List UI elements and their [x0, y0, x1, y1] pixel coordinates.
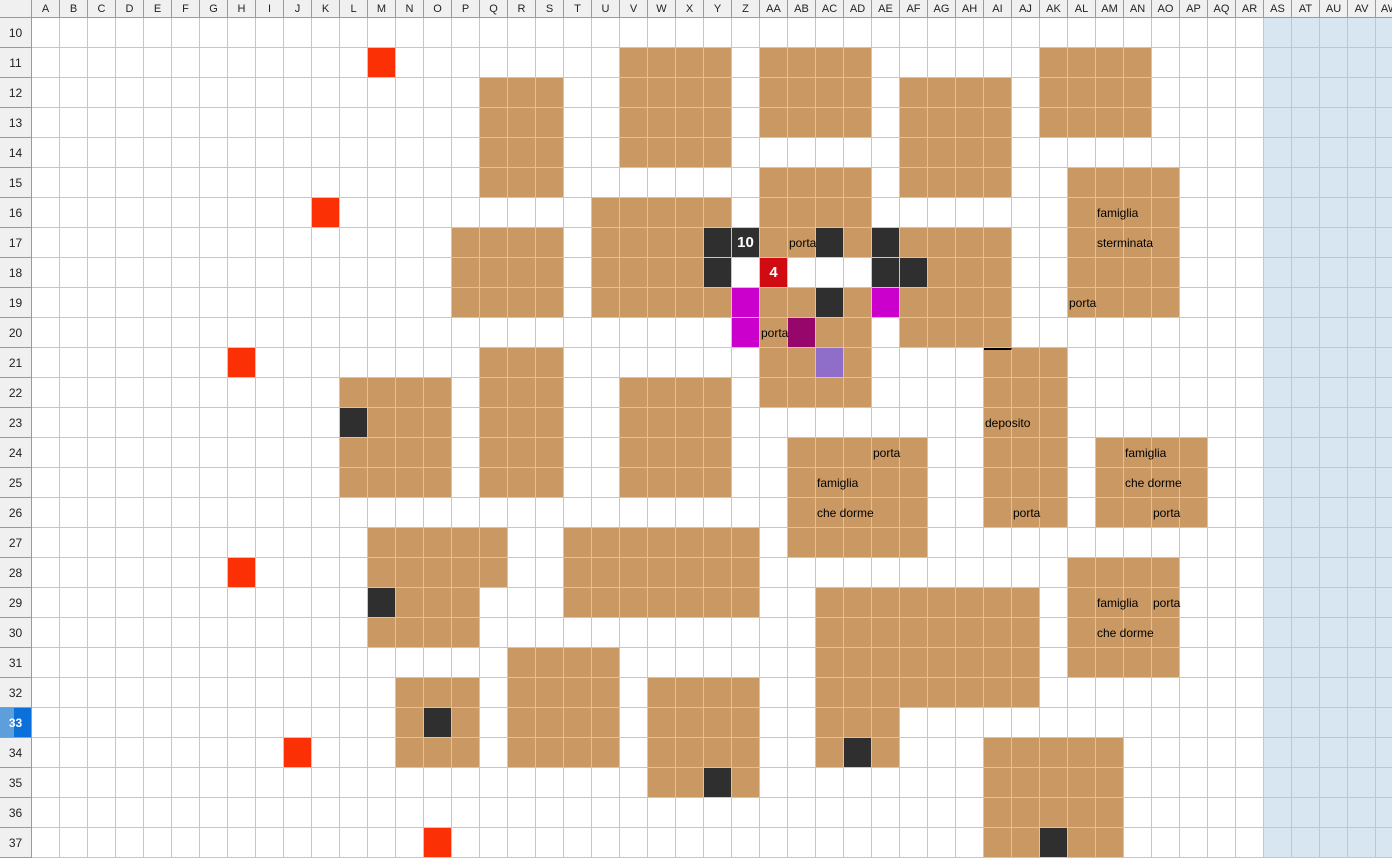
cell-AD13[interactable]: [844, 108, 872, 138]
cell-V16[interactable]: [620, 198, 648, 228]
cell-AR35[interactable]: [1236, 768, 1264, 798]
cell-AB18[interactable]: [788, 258, 816, 288]
cell-S25[interactable]: [536, 468, 564, 498]
cell-AU31[interactable]: [1320, 648, 1348, 678]
cell-AO33[interactable]: [1152, 708, 1180, 738]
cell-J16[interactable]: [284, 198, 312, 228]
cell-T20[interactable]: [564, 318, 592, 348]
cell-AA35[interactable]: [760, 768, 788, 798]
cell-AR19[interactable]: [1236, 288, 1264, 318]
cell-AC11[interactable]: [816, 48, 844, 78]
cell-D31[interactable]: [116, 648, 144, 678]
cell-AL20[interactable]: [1068, 318, 1096, 348]
cell-AB34[interactable]: [788, 738, 816, 768]
cell-S24[interactable]: [536, 438, 564, 468]
cell-U26[interactable]: [592, 498, 620, 528]
cell-AP28[interactable]: [1180, 558, 1208, 588]
cell-AS25[interactable]: [1264, 468, 1292, 498]
row-header-24[interactable]: 24: [0, 438, 32, 468]
cell-AR30[interactable]: [1236, 618, 1264, 648]
cell-AT23[interactable]: [1292, 408, 1320, 438]
cell-AD34[interactable]: [844, 738, 872, 768]
cell-AA27[interactable]: [760, 528, 788, 558]
cell-Y31[interactable]: [704, 648, 732, 678]
cell-U13[interactable]: [592, 108, 620, 138]
cell-X35[interactable]: [676, 768, 704, 798]
cell-AU14[interactable]: [1320, 138, 1348, 168]
cell-V24[interactable]: [620, 438, 648, 468]
cell-X33[interactable]: [676, 708, 704, 738]
cell-AU36[interactable]: [1320, 798, 1348, 828]
cell-W35[interactable]: [648, 768, 676, 798]
cell-AC31[interactable]: [816, 648, 844, 678]
cell-F35[interactable]: [172, 768, 200, 798]
cell-AH34[interactable]: [956, 738, 984, 768]
cell-J30[interactable]: [284, 618, 312, 648]
cell-A22[interactable]: [32, 378, 60, 408]
cell-I27[interactable]: [256, 528, 284, 558]
cell-AK33[interactable]: [1040, 708, 1068, 738]
cell-AJ30[interactable]: [1012, 618, 1040, 648]
cell-AU34[interactable]: [1320, 738, 1348, 768]
cell-AR15[interactable]: [1236, 168, 1264, 198]
cell-AW27[interactable]: [1376, 528, 1392, 558]
cell-AL25[interactable]: [1068, 468, 1096, 498]
cell-AP27[interactable]: [1180, 528, 1208, 558]
cell-E27[interactable]: [144, 528, 172, 558]
cell-R22[interactable]: [508, 378, 536, 408]
cell-F12[interactable]: [172, 78, 200, 108]
cell-X22[interactable]: [676, 378, 704, 408]
cell-U33[interactable]: [592, 708, 620, 738]
cell-U17[interactable]: [592, 228, 620, 258]
cell-AP18[interactable]: [1180, 258, 1208, 288]
cell-AK23[interactable]: [1040, 408, 1068, 438]
cell-O15[interactable]: [424, 168, 452, 198]
cell-AJ34[interactable]: [1012, 738, 1040, 768]
cell-AA11[interactable]: [760, 48, 788, 78]
cell-AD17[interactable]: [844, 228, 872, 258]
cell-B37[interactable]: [60, 828, 88, 858]
cell-V12[interactable]: [620, 78, 648, 108]
cell-Q21[interactable]: [480, 348, 508, 378]
cell-Z11[interactable]: [732, 48, 760, 78]
cell-Z30[interactable]: [732, 618, 760, 648]
cell-AS11[interactable]: [1264, 48, 1292, 78]
cell-AB35[interactable]: [788, 768, 816, 798]
cell-AB13[interactable]: [788, 108, 816, 138]
cell-Y12[interactable]: [704, 78, 732, 108]
cell-J11[interactable]: [284, 48, 312, 78]
cell-AQ36[interactable]: [1208, 798, 1236, 828]
cell-Q14[interactable]: [480, 138, 508, 168]
row-header-32[interactable]: 32: [0, 678, 32, 708]
cell-P27[interactable]: [452, 528, 480, 558]
cell-D32[interactable]: [116, 678, 144, 708]
cell-S31[interactable]: [536, 648, 564, 678]
cell-I12[interactable]: [256, 78, 284, 108]
cell-F19[interactable]: [172, 288, 200, 318]
cell-R24[interactable]: [508, 438, 536, 468]
cell-C37[interactable]: [88, 828, 116, 858]
cell-T32[interactable]: [564, 678, 592, 708]
cell-N20[interactable]: [396, 318, 424, 348]
cell-AW10[interactable]: [1376, 18, 1392, 48]
cell-AS27[interactable]: [1264, 528, 1292, 558]
cell-AJ14[interactable]: [1012, 138, 1040, 168]
cell-Y15[interactable]: [704, 168, 732, 198]
cell-AL30[interactable]: [1068, 618, 1096, 648]
cell-J35[interactable]: [284, 768, 312, 798]
cell-F27[interactable]: [172, 528, 200, 558]
cell-AC33[interactable]: [816, 708, 844, 738]
cell-AI15[interactable]: [984, 168, 1012, 198]
cell-L37[interactable]: [340, 828, 368, 858]
cell-P19[interactable]: [452, 288, 480, 318]
cell-AC13[interactable]: [816, 108, 844, 138]
cell-K25[interactable]: [312, 468, 340, 498]
cell-AW29[interactable]: [1376, 588, 1392, 618]
cell-AL11[interactable]: [1068, 48, 1096, 78]
cell-AV28[interactable]: [1348, 558, 1376, 588]
cell-AE25[interactable]: [872, 468, 900, 498]
cell-B35[interactable]: [60, 768, 88, 798]
cell-AQ34[interactable]: [1208, 738, 1236, 768]
cell-W13[interactable]: [648, 108, 676, 138]
cell-AF12[interactable]: [900, 78, 928, 108]
cell-W19[interactable]: [648, 288, 676, 318]
cell-D21[interactable]: [116, 348, 144, 378]
cell-AM10[interactable]: [1096, 18, 1124, 48]
cell-AO16[interactable]: [1152, 198, 1180, 228]
cell-AC19[interactable]: [816, 288, 844, 318]
cell-U14[interactable]: [592, 138, 620, 168]
row-header-25[interactable]: 25: [0, 468, 32, 498]
cell-F30[interactable]: [172, 618, 200, 648]
cell-R17[interactable]: [508, 228, 536, 258]
cell-M22[interactable]: [368, 378, 396, 408]
cell-H16[interactable]: [228, 198, 256, 228]
cell-AA25[interactable]: [760, 468, 788, 498]
cell-X21[interactable]: [676, 348, 704, 378]
cell-G37[interactable]: [200, 828, 228, 858]
cell-AS22[interactable]: [1264, 378, 1292, 408]
cell-AM32[interactable]: [1096, 678, 1124, 708]
cell-AF29[interactable]: [900, 588, 928, 618]
cell-AI37[interactable]: [984, 828, 1012, 858]
cell-E36[interactable]: [144, 798, 172, 828]
cell-R18[interactable]: [508, 258, 536, 288]
cell-AQ10[interactable]: [1208, 18, 1236, 48]
cell-X12[interactable]: [676, 78, 704, 108]
cell-AA22[interactable]: [760, 378, 788, 408]
cell-T23[interactable]: [564, 408, 592, 438]
cell-AV24[interactable]: [1348, 438, 1376, 468]
cell-G15[interactable]: [200, 168, 228, 198]
cell-AF28[interactable]: [900, 558, 928, 588]
cell-AM18[interactable]: [1096, 258, 1124, 288]
cell-AU23[interactable]: [1320, 408, 1348, 438]
cell-AG12[interactable]: [928, 78, 956, 108]
cell-V21[interactable]: [620, 348, 648, 378]
cell-O18[interactable]: [424, 258, 452, 288]
cell-AM19[interactable]: [1096, 288, 1124, 318]
cell-M33[interactable]: [368, 708, 396, 738]
cell-AC34[interactable]: [816, 738, 844, 768]
cell-Q35[interactable]: [480, 768, 508, 798]
cell-AL33[interactable]: [1068, 708, 1096, 738]
cell-Q22[interactable]: [480, 378, 508, 408]
cell-G26[interactable]: [200, 498, 228, 528]
cell-Y22[interactable]: [704, 378, 732, 408]
cell-AP10[interactable]: [1180, 18, 1208, 48]
cell-V31[interactable]: [620, 648, 648, 678]
cell-B27[interactable]: [60, 528, 88, 558]
cell-AE17[interactable]: [872, 228, 900, 258]
cell-AH18[interactable]: [956, 258, 984, 288]
cell-AB37[interactable]: [788, 828, 816, 858]
cell-AS23[interactable]: [1264, 408, 1292, 438]
cell-AM13[interactable]: [1096, 108, 1124, 138]
cell-T11[interactable]: [564, 48, 592, 78]
cell-F11[interactable]: [172, 48, 200, 78]
cell-J15[interactable]: [284, 168, 312, 198]
cell-AE23[interactable]: [872, 408, 900, 438]
column-header-AB[interactable]: AB: [788, 0, 816, 18]
cell-N16[interactable]: [396, 198, 424, 228]
cell-Y18[interactable]: [704, 258, 732, 288]
cell-AK25[interactable]: [1040, 468, 1068, 498]
cell-AW37[interactable]: [1376, 828, 1392, 858]
cell-P32[interactable]: [452, 678, 480, 708]
cell-AF13[interactable]: [900, 108, 928, 138]
cell-J17[interactable]: [284, 228, 312, 258]
cell-G33[interactable]: [200, 708, 228, 738]
cell-AI35[interactable]: [984, 768, 1012, 798]
column-header-AL[interactable]: AL: [1068, 0, 1096, 18]
row-header-16[interactable]: 16: [0, 198, 32, 228]
cell-AK18[interactable]: [1040, 258, 1068, 288]
cell-AT35[interactable]: [1292, 768, 1320, 798]
cell-Q34[interactable]: [480, 738, 508, 768]
cell-AD15[interactable]: [844, 168, 872, 198]
column-header-AV[interactable]: AV: [1348, 0, 1376, 18]
cell-AL28[interactable]: [1068, 558, 1096, 588]
cell-W25[interactable]: [648, 468, 676, 498]
cell-U34[interactable]: [592, 738, 620, 768]
cell-AR12[interactable]: [1236, 78, 1264, 108]
cell-K21[interactable]: [312, 348, 340, 378]
cell-AP16[interactable]: [1180, 198, 1208, 228]
cell-AW28[interactable]: [1376, 558, 1392, 588]
cell-AM37[interactable]: [1096, 828, 1124, 858]
cell-AO19[interactable]: [1152, 288, 1180, 318]
cell-K16[interactable]: [312, 198, 340, 228]
cell-AM11[interactable]: [1096, 48, 1124, 78]
cell-K20[interactable]: [312, 318, 340, 348]
cell-W16[interactable]: [648, 198, 676, 228]
cell-K19[interactable]: [312, 288, 340, 318]
cell-M30[interactable]: [368, 618, 396, 648]
cell-AW11[interactable]: [1376, 48, 1392, 78]
cell-P37[interactable]: [452, 828, 480, 858]
cell-I20[interactable]: [256, 318, 284, 348]
cell-G29[interactable]: [200, 588, 228, 618]
cell-R16[interactable]: [508, 198, 536, 228]
cell-A19[interactable]: [32, 288, 60, 318]
cell-AN12[interactable]: [1124, 78, 1152, 108]
cell-AN30[interactable]: [1124, 618, 1152, 648]
cell-J33[interactable]: [284, 708, 312, 738]
row-header-18[interactable]: 18: [0, 258, 32, 288]
cell-AV36[interactable]: [1348, 798, 1376, 828]
row-header-19[interactable]: 19: [0, 288, 32, 318]
cell-F31[interactable]: [172, 648, 200, 678]
cell-H26[interactable]: [228, 498, 256, 528]
cell-AF36[interactable]: [900, 798, 928, 828]
cell-P22[interactable]: [452, 378, 480, 408]
cell-AF31[interactable]: [900, 648, 928, 678]
cell-AG25[interactable]: [928, 468, 956, 498]
cell-AO37[interactable]: [1152, 828, 1180, 858]
cell-V25[interactable]: [620, 468, 648, 498]
cell-O11[interactable]: [424, 48, 452, 78]
cell-V23[interactable]: [620, 408, 648, 438]
cell-AU21[interactable]: [1320, 348, 1348, 378]
cell-X36[interactable]: [676, 798, 704, 828]
cell-AQ25[interactable]: [1208, 468, 1236, 498]
cell-P13[interactable]: [452, 108, 480, 138]
cell-AB21[interactable]: [788, 348, 816, 378]
cell-E37[interactable]: [144, 828, 172, 858]
cell-Y23[interactable]: [704, 408, 732, 438]
cell-AW26[interactable]: [1376, 498, 1392, 528]
cell-O24[interactable]: [424, 438, 452, 468]
cell-K26[interactable]: [312, 498, 340, 528]
cell-AJ33[interactable]: [1012, 708, 1040, 738]
cell-AD27[interactable]: [844, 528, 872, 558]
cell-AN19[interactable]: [1124, 288, 1152, 318]
cell-E15[interactable]: [144, 168, 172, 198]
column-header-AO[interactable]: AO: [1152, 0, 1180, 18]
cell-AB30[interactable]: [788, 618, 816, 648]
cell-F28[interactable]: [172, 558, 200, 588]
cell-T25[interactable]: [564, 468, 592, 498]
cell-AJ31[interactable]: [1012, 648, 1040, 678]
cell-AD21[interactable]: [844, 348, 872, 378]
cell-AU17[interactable]: [1320, 228, 1348, 258]
cell-V27[interactable]: [620, 528, 648, 558]
cell-AT34[interactable]: [1292, 738, 1320, 768]
cell-C19[interactable]: [88, 288, 116, 318]
cell-H15[interactable]: [228, 168, 256, 198]
cell-M28[interactable]: [368, 558, 396, 588]
cell-AV25[interactable]: [1348, 468, 1376, 498]
cell-S12[interactable]: [536, 78, 564, 108]
cell-O33[interactable]: [424, 708, 452, 738]
cell-AN28[interactable]: [1124, 558, 1152, 588]
cell-AK24[interactable]: [1040, 438, 1068, 468]
cell-T33[interactable]: [564, 708, 592, 738]
cell-AH36[interactable]: [956, 798, 984, 828]
cell-AP11[interactable]: [1180, 48, 1208, 78]
cell-AN25[interactable]: che dorme: [1124, 468, 1152, 498]
cell-AO13[interactable]: [1152, 108, 1180, 138]
cell-K24[interactable]: [312, 438, 340, 468]
column-header-V[interactable]: V: [620, 0, 648, 18]
cell-P18[interactable]: [452, 258, 480, 288]
cell-AK20[interactable]: [1040, 318, 1068, 348]
cell-AW21[interactable]: [1376, 348, 1392, 378]
cell-F26[interactable]: [172, 498, 200, 528]
cell-W36[interactable]: [648, 798, 676, 828]
cell-AR29[interactable]: [1236, 588, 1264, 618]
cell-R31[interactable]: [508, 648, 536, 678]
cell-O23[interactable]: [424, 408, 452, 438]
cell-AM21[interactable]: [1096, 348, 1124, 378]
cell-G28[interactable]: [200, 558, 228, 588]
cell-L16[interactable]: [340, 198, 368, 228]
cell-AD23[interactable]: [844, 408, 872, 438]
cell-AA28[interactable]: [760, 558, 788, 588]
cell-AE29[interactable]: [872, 588, 900, 618]
cell-Z18[interactable]: [732, 258, 760, 288]
cell-AD33[interactable]: [844, 708, 872, 738]
cell-H19[interactable]: [228, 288, 256, 318]
cell-AR11[interactable]: [1236, 48, 1264, 78]
cell-S11[interactable]: [536, 48, 564, 78]
cell-E21[interactable]: [144, 348, 172, 378]
cell-Y35[interactable]: [704, 768, 732, 798]
cell-AF26[interactable]: [900, 498, 928, 528]
cell-F33[interactable]: [172, 708, 200, 738]
cell-M16[interactable]: [368, 198, 396, 228]
cell-J20[interactable]: [284, 318, 312, 348]
cell-J32[interactable]: [284, 678, 312, 708]
cell-AJ10[interactable]: [1012, 18, 1040, 48]
cell-AL24[interactable]: [1068, 438, 1096, 468]
cell-AE33[interactable]: [872, 708, 900, 738]
cell-K37[interactable]: [312, 828, 340, 858]
cell-A25[interactable]: [32, 468, 60, 498]
cell-O14[interactable]: [424, 138, 452, 168]
cell-AU28[interactable]: [1320, 558, 1348, 588]
cell-A13[interactable]: [32, 108, 60, 138]
cell-D24[interactable]: [116, 438, 144, 468]
cell-H28[interactable]: [228, 558, 256, 588]
cell-S26[interactable]: [536, 498, 564, 528]
cell-AI14[interactable]: [984, 138, 1012, 168]
cell-AI13[interactable]: [984, 108, 1012, 138]
cell-AP13[interactable]: [1180, 108, 1208, 138]
cell-H34[interactable]: [228, 738, 256, 768]
cell-AO25[interactable]: [1152, 468, 1180, 498]
cell-Q12[interactable]: [480, 78, 508, 108]
cell-AN33[interactable]: [1124, 708, 1152, 738]
cell-AA21[interactable]: [760, 348, 788, 378]
cell-AL15[interactable]: [1068, 168, 1096, 198]
cell-Q33[interactable]: [480, 708, 508, 738]
cell-L28[interactable]: [340, 558, 368, 588]
cell-F16[interactable]: [172, 198, 200, 228]
column-header-M[interactable]: M: [368, 0, 396, 18]
cell-O13[interactable]: [424, 108, 452, 138]
cell-J24[interactable]: [284, 438, 312, 468]
cell-R37[interactable]: [508, 828, 536, 858]
cell-AL32[interactable]: [1068, 678, 1096, 708]
cell-M29[interactable]: [368, 588, 396, 618]
cell-O12[interactable]: [424, 78, 452, 108]
